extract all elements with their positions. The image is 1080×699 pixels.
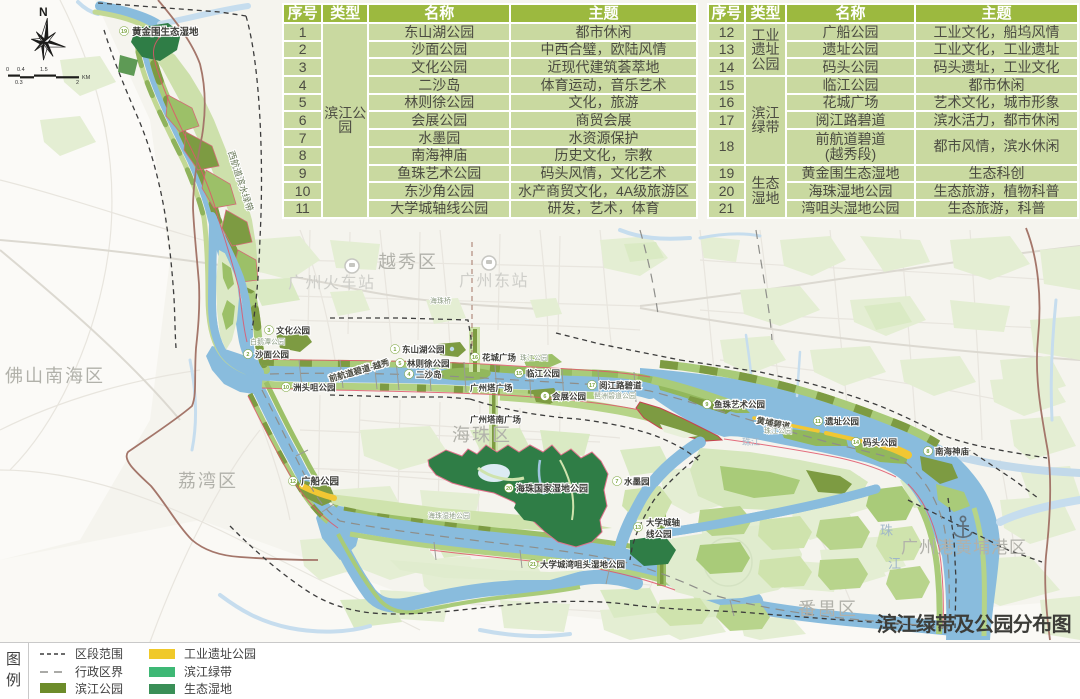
svg-text:生态湿地: 生态湿地 xyxy=(184,681,232,696)
svg-text:0: 0 xyxy=(6,67,9,73)
svg-text:广州东站: 广州东站 xyxy=(459,272,529,290)
svg-text:1: 1 xyxy=(393,347,396,353)
svg-text:15: 15 xyxy=(516,371,522,377)
svg-text:水墨园: 水墨园 xyxy=(623,477,650,487)
svg-text:7: 7 xyxy=(615,479,618,485)
svg-text:广州火车站: 广州火车站 xyxy=(288,274,376,292)
svg-text:海珠湿地公园: 海珠湿地公园 xyxy=(428,511,470,520)
svg-text:工业遗址公园: 工业遗址公园 xyxy=(184,647,256,661)
svg-text:海珠国家湿地公园: 海珠国家湿地公园 xyxy=(516,483,588,494)
svg-text:遗址公园: 遗址公园 xyxy=(824,417,859,427)
svg-text:14: 14 xyxy=(853,440,860,446)
svg-text:区段范围: 区段范围 xyxy=(75,646,123,661)
svg-text:大学城轴: 大学城轴 xyxy=(646,518,681,528)
svg-text:二沙岛: 二沙岛 xyxy=(416,370,442,380)
svg-text:海珠区: 海珠区 xyxy=(452,425,512,445)
svg-text:林则徐公园: 林则徐公园 xyxy=(407,359,450,369)
svg-text:3: 3 xyxy=(267,328,270,334)
svg-text:线公园: 线公园 xyxy=(646,529,672,539)
svg-text:1.5: 1.5 xyxy=(40,67,48,73)
svg-text:珠江公园: 珠江公园 xyxy=(764,426,792,435)
svg-text:6: 6 xyxy=(543,394,546,400)
svg-text:鱼珠艺术公园: 鱼珠艺术公园 xyxy=(714,400,765,410)
svg-text:19: 19 xyxy=(121,29,127,35)
svg-text:广船公园: 广船公园 xyxy=(301,476,339,488)
svg-text:2: 2 xyxy=(76,80,79,86)
svg-text:广州塔广场: 广州塔广场 xyxy=(470,383,513,393)
svg-text:17: 17 xyxy=(589,383,595,389)
svg-text:0.3: 0.3 xyxy=(15,80,23,86)
svg-text:荔湾区: 荔湾区 xyxy=(178,471,238,491)
svg-text:花城广场: 花城广场 xyxy=(482,353,517,363)
svg-text:KM: KM xyxy=(82,75,91,81)
svg-text:珠江公园: 珠江公园 xyxy=(520,353,548,362)
svg-text:2: 2 xyxy=(246,352,249,358)
svg-text:5: 5 xyxy=(398,361,401,367)
svg-text:珠: 珠 xyxy=(880,523,893,538)
svg-text:南海神庙: 南海神庙 xyxy=(935,447,970,457)
svg-text:越秀区: 越秀区 xyxy=(378,252,438,272)
svg-text:临江公园: 临江公园 xyxy=(526,369,560,379)
svg-text:大学城湾咀头湿地公园: 大学城湾咀头湿地公园 xyxy=(540,560,625,570)
svg-text:0.4: 0.4 xyxy=(17,67,25,73)
svg-text:行政区界: 行政区界 xyxy=(75,665,123,679)
svg-text:码头公园: 码头公园 xyxy=(863,438,897,448)
svg-text:11: 11 xyxy=(815,419,821,425)
svg-text:21: 21 xyxy=(530,562,536,568)
svg-text:20: 20 xyxy=(506,486,512,492)
svg-text:东山湖公园: 东山湖公园 xyxy=(402,345,445,355)
svg-text:会展公园: 会展公园 xyxy=(551,392,586,402)
svg-text:滨江绿带: 滨江绿带 xyxy=(184,664,232,679)
svg-text:9: 9 xyxy=(705,402,708,408)
svg-text:广州塔南广场: 广州塔南广场 xyxy=(470,415,522,425)
svg-text:10: 10 xyxy=(283,385,289,391)
svg-text:洲头咀公园: 洲头咀公园 xyxy=(293,383,336,393)
svg-text:阅江路碧道: 阅江路碧道 xyxy=(599,381,642,391)
svg-text:海珠桥: 海珠桥 xyxy=(430,296,451,305)
svg-text:琶洲碧道公园: 琶洲碧道公园 xyxy=(594,391,636,400)
svg-text:13: 13 xyxy=(635,525,641,531)
svg-text:16: 16 xyxy=(472,355,478,361)
svg-text:沙面公园: 沙面公园 xyxy=(255,350,289,360)
svg-text:广州港黄埔港区: 广州港黄埔港区 xyxy=(901,538,1027,557)
svg-text:佛山南海区: 佛山南海区 xyxy=(5,366,105,386)
svg-text:8: 8 xyxy=(926,449,929,455)
svg-text:黄金围生态湿地: 黄金围生态湿地 xyxy=(132,26,199,38)
svg-text:N: N xyxy=(39,5,48,19)
svg-text:文化公园: 文化公园 xyxy=(276,326,310,336)
svg-text:滨江公园: 滨江公园 xyxy=(75,681,123,696)
svg-text:江: 江 xyxy=(888,556,901,571)
svg-text:番禺区: 番禺区 xyxy=(798,599,858,619)
svg-text:12: 12 xyxy=(290,479,296,485)
svg-text:珠江: 珠江 xyxy=(742,436,760,447)
svg-text:白鹅潭公园: 白鹅潭公园 xyxy=(250,337,285,346)
